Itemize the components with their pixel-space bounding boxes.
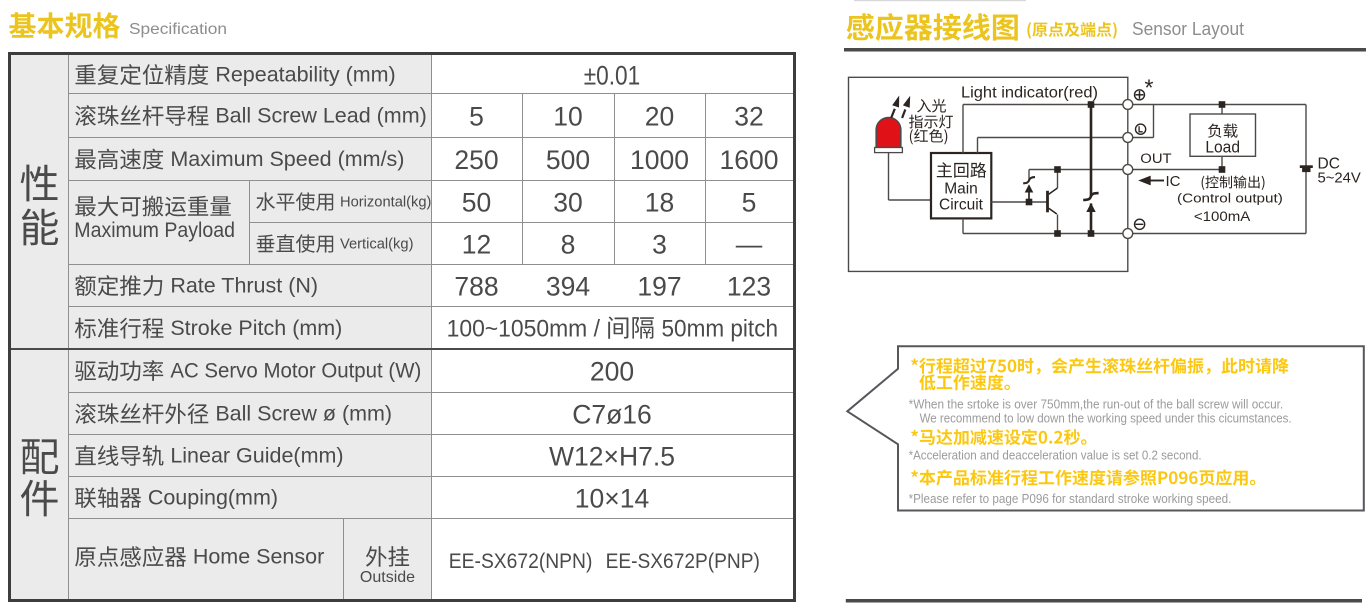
svg-text:100~1050mm /: 100~1050mm / <box>447 316 601 343</box>
svg-text:±0.01: ±0.01 <box>584 61 641 91</box>
svg-text:Maximum Payload: Maximum Payload <box>74 218 235 242</box>
svg-text:<100mA: <100mA <box>1194 209 1251 224</box>
svg-text:500: 500 <box>546 145 590 175</box>
svg-text:Circuit: Circuit <box>939 197 984 214</box>
svg-text:32: 32 <box>734 102 763 132</box>
svg-text:20: 20 <box>645 102 674 132</box>
svg-text:1600: 1600 <box>720 145 779 175</box>
svg-text:Horizontal(kg): Horizontal(kg) <box>340 194 431 210</box>
svg-text:*: * <box>1145 74 1154 100</box>
svg-text:EE-SX672P(PNP): EE-SX672P(PNP) <box>606 549 760 573</box>
svg-text:(Control output): (Control output) <box>1177 190 1283 205</box>
svg-text:3: 3 <box>652 230 667 260</box>
svg-text:*When the srtoke is over 750mm: *When the srtoke is over 750mm,the run-o… <box>909 396 1284 411</box>
svg-text:C7ø16: C7ø16 <box>572 400 652 430</box>
svg-text:Ball Screw Lead (mm): Ball Screw Lead (mm) <box>215 104 426 128</box>
svg-text:Sensor Layout: Sensor Layout <box>1132 18 1244 39</box>
svg-text:18: 18 <box>645 188 674 218</box>
svg-text:Rate Thrust (N): Rate Thrust (N) <box>170 274 318 298</box>
svg-text:Load: Load <box>1205 138 1240 156</box>
svg-text:—: — <box>736 230 763 260</box>
svg-text:5: 5 <box>742 188 757 218</box>
svg-text:Ball Screw ø (mm): Ball Screw ø (mm) <box>215 402 392 426</box>
svg-text:10: 10 <box>553 102 582 132</box>
svg-text:50mm pitch: 50mm pitch <box>662 316 779 343</box>
svg-text:W12×H7.5: W12×H7.5 <box>549 442 675 472</box>
svg-text:OUT: OUT <box>1140 151 1171 166</box>
svg-text:12: 12 <box>462 230 491 260</box>
svg-text:8: 8 <box>561 230 576 260</box>
svg-text:Specification: Specification <box>129 21 227 38</box>
svg-text:Main: Main <box>944 181 978 198</box>
svg-text:10×14: 10×14 <box>575 484 649 514</box>
svg-text:Stroke Pitch (mm): Stroke Pitch (mm) <box>170 316 342 340</box>
svg-text:Light indicator(red): Light indicator(red) <box>961 84 1098 101</box>
svg-text:394: 394 <box>546 272 590 302</box>
svg-text:123: 123 <box>727 272 771 302</box>
svg-text:EE-SX672(NPN): EE-SX672(NPN) <box>449 549 593 573</box>
svg-text:*Acceleration and deaccelerati: *Acceleration and deacceleration value i… <box>909 448 1202 463</box>
svg-text:197: 197 <box>637 272 681 302</box>
svg-text:Maximum Speed (mm/s): Maximum Speed (mm/s) <box>170 147 404 171</box>
svg-text:Outside: Outside <box>360 569 415 586</box>
svg-text:250: 250 <box>454 145 498 175</box>
svg-text:5: 5 <box>469 102 484 132</box>
svg-text:788: 788 <box>454 272 498 302</box>
svg-text:Linear Guide(mm): Linear Guide(mm) <box>170 444 343 468</box>
svg-text:5~24V: 5~24V <box>1318 170 1361 187</box>
svg-text:200: 200 <box>590 357 634 387</box>
svg-text:50: 50 <box>462 188 491 218</box>
svg-text:Couping(mm): Couping(mm) <box>148 486 278 510</box>
svg-text:1000: 1000 <box>630 145 689 175</box>
svg-text:Home Sensor: Home Sensor <box>193 545 324 569</box>
svg-text:*Please refer to page P096 for: *Please refer to page P096 for standard … <box>909 491 1232 506</box>
svg-text:We recommend to low down the w: We recommend to low down the working spe… <box>920 411 1292 426</box>
svg-text:Vertical(kg): Vertical(kg) <box>340 236 413 252</box>
svg-text:30: 30 <box>553 188 582 218</box>
svg-text:AC Servo Motor Output (W): AC Servo Motor Output (W) <box>170 359 421 383</box>
svg-text:Repeatability (mm): Repeatability (mm) <box>215 63 395 87</box>
svg-text:IC: IC <box>1166 173 1181 190</box>
